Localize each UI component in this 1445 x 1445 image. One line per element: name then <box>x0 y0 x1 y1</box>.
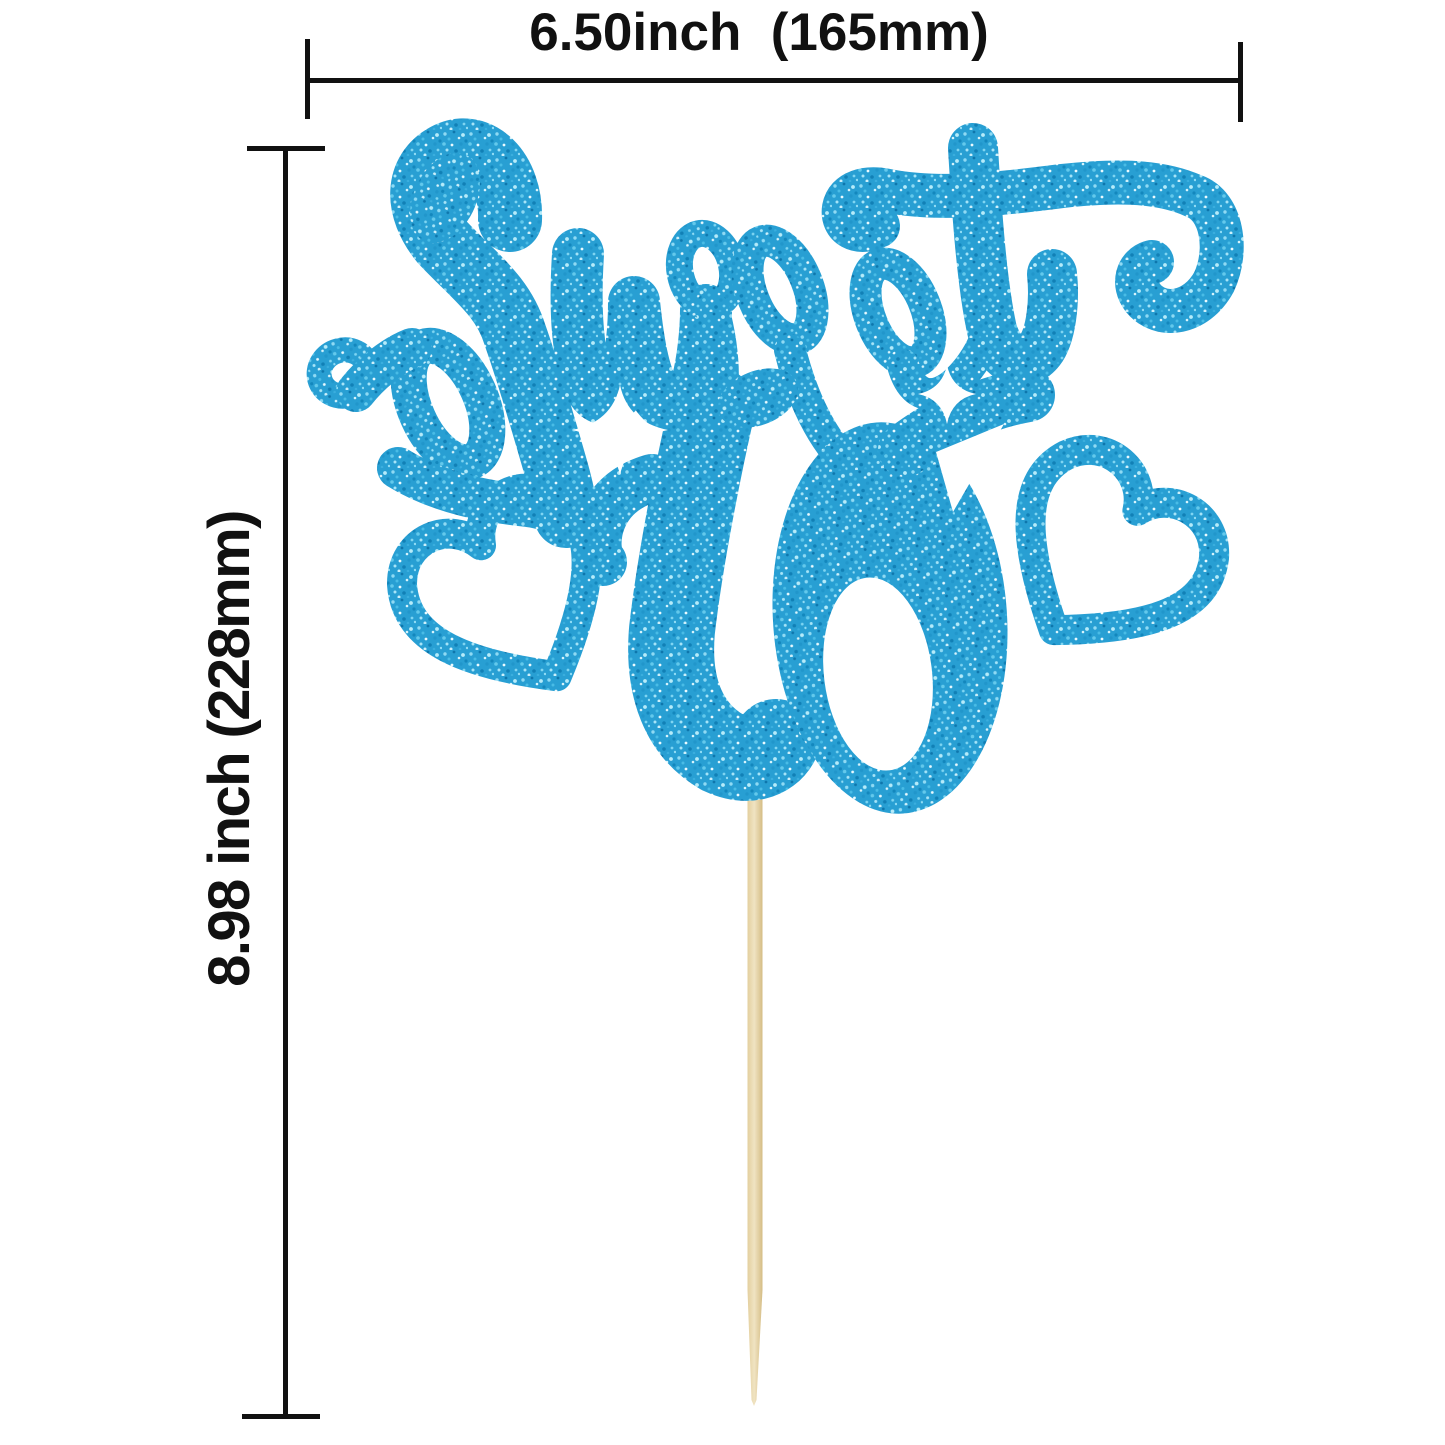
svg-text:6.50inch (165mm): 6.50inch (165mm) <box>529 3 989 62</box>
svg-text:8.98 inch (228mm): 8.98 inch (228mm) <box>197 511 262 987</box>
